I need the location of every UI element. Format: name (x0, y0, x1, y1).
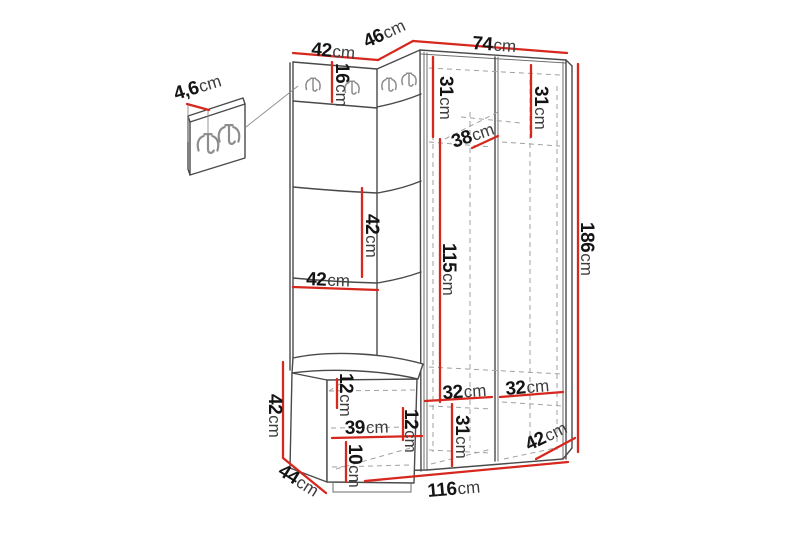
dim-label-bench-shelf-height: 10cm (344, 444, 365, 488)
dim-label-bench-opening-width: 39cm (344, 416, 389, 439)
dim-line-wall-panel-depth (187, 104, 209, 110)
bench-cushion (292, 353, 423, 379)
furniture-dimension-diagram: 42cm 46cm 74cm 16cm 4,6cm 31cm 31cm 38cm… (0, 0, 800, 533)
dim-label-upper-right-height: 31cm (530, 86, 551, 130)
dim-label-wardrobe-width-top: 74cm (472, 33, 517, 57)
dim-label-bench-height: 42cm (264, 394, 285, 438)
dim-label-lower-right-width: 32cm (505, 375, 550, 400)
dim-label-bench-top-section: 12cm (335, 373, 356, 417)
dim-label-panel-width-top: 42cm (311, 39, 356, 64)
dim-label-hook-strip-height: 16cm (331, 63, 352, 107)
dim-label-total-height: 186cm (576, 222, 597, 276)
diagram-canvas: 42cm 46cm 74cm 16cm 4,6cm 31cm 31cm 38cm… (0, 0, 800, 533)
dim-label-panel-mid-height: 42cm (361, 214, 382, 258)
dim-label-upper-left-height: 31cm (435, 76, 456, 120)
dim-label-lower-left-width: 32cm (442, 380, 487, 404)
hook-panel-detail-view (188, 86, 298, 175)
dim-label-total-bottom-width: 116cm (427, 476, 481, 502)
dim-label-panel-mid-width: 42cm (306, 269, 351, 292)
dimension-labels: 42cm 46cm 74cm 16cm 4,6cm 31cm 31cm 38cm… (171, 15, 597, 502)
dim-label-hanging-height: 115cm (438, 243, 459, 296)
dim-label-lower-height: 31cm (451, 415, 472, 459)
dim-label-wall-panel-depth: 4,6cm (171, 70, 224, 104)
dim-label-corner-inner-height: 12cm (400, 409, 421, 453)
